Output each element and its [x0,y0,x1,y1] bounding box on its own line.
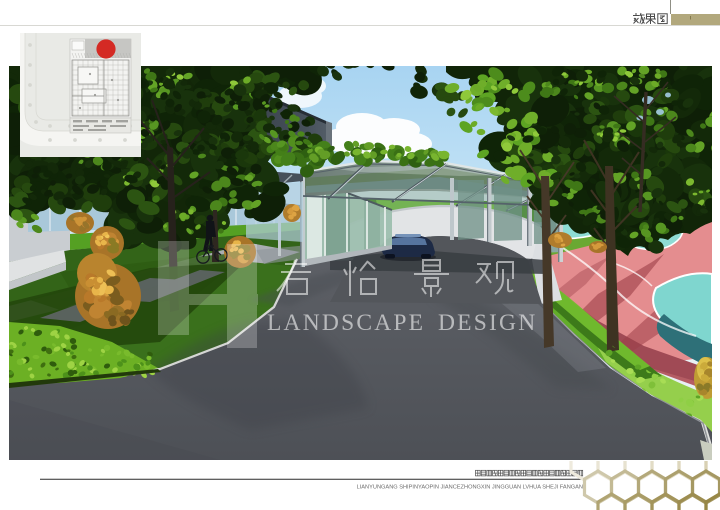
svg-text:DESIGN: DESIGN [438,310,537,336]
svg-text:LANDSCAPE: LANDSCAPE [267,310,425,336]
svg-text:LIANYUNGANG SHIPINYAOPIN JIANC: LIANYUNGANG SHIPINYAOPIN JIANCEZHONGXIN … [357,485,583,491]
